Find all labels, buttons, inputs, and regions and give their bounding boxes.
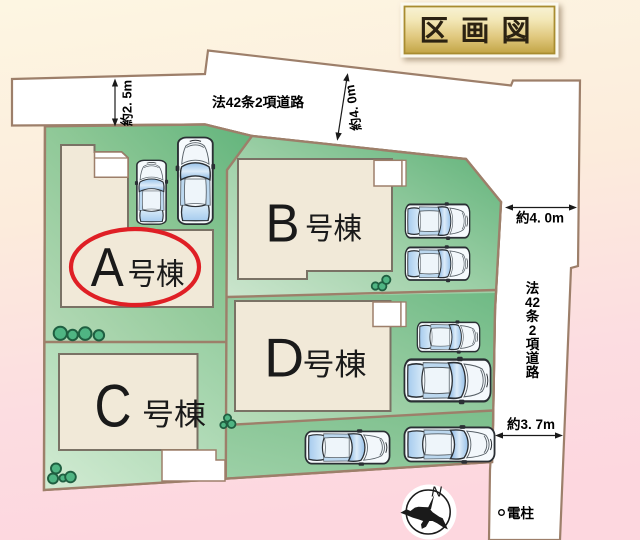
svg-text:C: C (95, 373, 132, 440)
svg-text:A: A (91, 236, 124, 298)
svg-text:路: 路 (526, 364, 540, 380)
svg-text:電柱: 電柱 (507, 505, 535, 521)
svg-text:約3. 7m: 約3. 7m (507, 416, 555, 432)
svg-text:法42条2項道路: 法42条2項道路 (212, 94, 304, 110)
svg-text:約2. 5m: 約2. 5m (120, 80, 135, 126)
svg-text:項: 項 (526, 337, 540, 352)
svg-text:約4. 0m: 約4. 0m (516, 210, 564, 226)
svg-text:号棟: 号棟 (128, 259, 185, 292)
svg-text:号棟: 号棟 (305, 213, 362, 246)
svg-text:2: 2 (529, 323, 537, 338)
svg-text:42: 42 (525, 295, 540, 310)
svg-text:号棟: 号棟 (142, 399, 206, 432)
svg-text:道: 道 (526, 350, 540, 366)
svg-text:N: N (431, 484, 442, 501)
svg-text:法: 法 (526, 280, 540, 296)
svg-text:号棟: 号棟 (303, 349, 367, 382)
svg-text:条: 条 (525, 308, 540, 324)
svg-text:B: B (266, 194, 300, 254)
svg-text:D: D (264, 327, 304, 389)
svg-text:区画図: 区画図 (419, 16, 542, 48)
